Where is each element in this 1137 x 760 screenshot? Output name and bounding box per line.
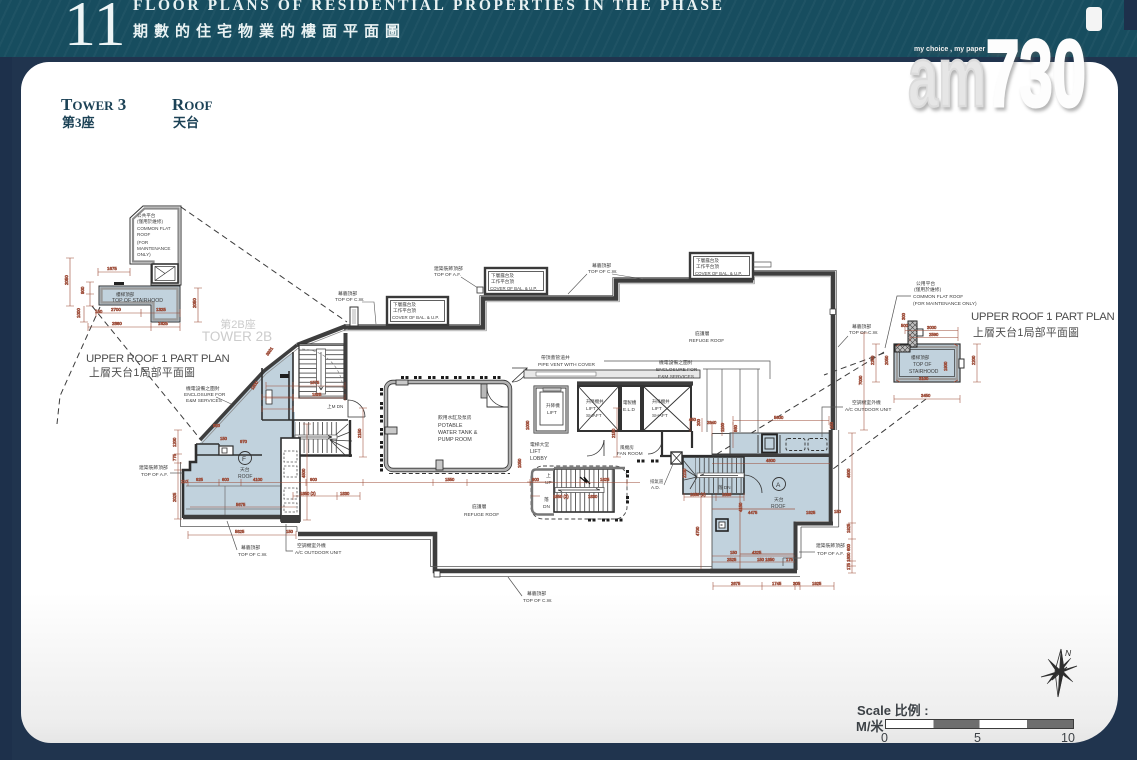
svg-text:2025: 2025 <box>172 492 177 502</box>
svg-text:幕牆頂部: 幕牆頂部 <box>852 323 871 330</box>
svg-text:150: 150 <box>286 529 294 534</box>
svg-text:DN: DN <box>543 504 550 510</box>
svg-text:150: 150 <box>834 509 842 514</box>
svg-text:LOBBY: LOBBY <box>530 456 548 462</box>
svg-text:帶頂蓋管道井: 帶頂蓋管道井 <box>541 354 570 361</box>
svg-text:ENCLOSURE FOR: ENCLOSURE FOR <box>656 367 698 373</box>
svg-text:(FOR MAINTENANCE ONLY): (FOR MAINTENANCE ONLY) <box>913 301 977 307</box>
svg-text:175: 175 <box>786 557 794 562</box>
svg-text:工作平台頂: 工作平台頂 <box>696 263 719 270</box>
svg-text:工作平台頂: 工作平台頂 <box>393 307 416 314</box>
svg-text:電梯大堂: 電梯大堂 <box>530 441 549 448</box>
svg-text:305: 305 <box>793 581 801 586</box>
svg-text:900: 900 <box>80 286 85 294</box>
svg-text:幕牆頂部: 幕牆頂部 <box>338 290 357 297</box>
svg-text:樓梯頂部: 樓梯頂部 <box>116 291 135 298</box>
svg-text:N: N <box>1065 648 1072 658</box>
svg-text:ROOF: ROOF <box>238 474 252 480</box>
svg-text:900: 900 <box>310 477 318 482</box>
svg-text:1575: 1575 <box>310 380 320 385</box>
svg-text:1625: 1625 <box>158 321 168 326</box>
svg-text:公用平台: 公用平台 <box>916 280 935 287</box>
svg-text:(僅用於維修): (僅用於維修) <box>914 286 942 293</box>
svg-text:TOP OF STAIRHOOD: TOP OF STAIRHOOD <box>112 298 163 304</box>
svg-text:PUMP ROOM: PUMP ROOM <box>438 437 472 443</box>
svg-text:(FOR: (FOR <box>137 240 149 245</box>
svg-text:LIFT: LIFT <box>530 449 541 455</box>
svg-text:5825: 5825 <box>235 529 245 534</box>
svg-text:落: 落 <box>544 496 549 503</box>
svg-text:幕牆頂部: 幕牆頂部 <box>241 544 260 551</box>
svg-text:3450: 3450 <box>921 393 931 398</box>
svg-text:REFUGE ROOF: REFUGE ROOF <box>689 338 724 344</box>
svg-text:5675: 5675 <box>236 502 246 507</box>
svg-text:E&M SERVICES: E&M SERVICES <box>186 398 222 404</box>
svg-text:建築裝飾頂部: 建築裝飾頂部 <box>434 265 463 272</box>
svg-text:4325: 4325 <box>752 550 762 555</box>
svg-text:150: 150 <box>95 309 103 314</box>
svg-text:飲用水缸及泵房: 飲用水缸及泵房 <box>438 414 472 421</box>
svg-text:TOP OF A.F.: TOP OF A.F. <box>434 272 461 278</box>
svg-text:UP: UP <box>545 480 552 486</box>
svg-text:升降機井: 升降機井 <box>652 398 670 405</box>
svg-text:A/C OUTDOOR UNIT: A/C OUTDOOR UNIT <box>845 407 891 413</box>
svg-text:建築裝飾頂部: 建築裝飾頂部 <box>816 542 845 549</box>
svg-text:升降機: 升降機 <box>546 402 560 409</box>
svg-text:(僅用於維修): (僅用於維修) <box>137 218 163 225</box>
svg-text:3931: 3931 <box>265 346 275 357</box>
svg-text:4150: 4150 <box>738 502 743 512</box>
svg-text:A/C OUTDOOR UNIT: A/C OUTDOOR UNIT <box>295 550 341 556</box>
svg-text:1625: 1625 <box>600 477 610 482</box>
svg-text:上M DN: 上M DN <box>327 403 343 409</box>
svg-text:COVER OF BAL. & U.P.: COVER OF BAL. & U.P. <box>392 315 439 320</box>
svg-text:LIFT: LIFT <box>586 406 596 412</box>
svg-text:LIFT: LIFT <box>547 410 557 416</box>
svg-text:COVER OF BAL. & U.P.: COVER OF BAL. & U.P. <box>490 286 537 291</box>
svg-text:工作平台頂: 工作平台頂 <box>491 278 514 285</box>
svg-text:SHAFT: SHAFT <box>586 413 602 419</box>
svg-text:2200: 2200 <box>870 355 875 365</box>
svg-text:150: 150 <box>829 421 834 429</box>
svg-text:E.L.D: E.L.D <box>623 407 636 413</box>
svg-text:A: A <box>776 482 781 489</box>
svg-text:空調機室外機: 空調機室外機 <box>297 542 326 549</box>
svg-text:幕牆頂部: 幕牆頂部 <box>527 590 546 597</box>
svg-text:1925: 1925 <box>812 581 822 586</box>
svg-text:2150: 2150 <box>357 428 362 438</box>
svg-text:1900: 1900 <box>943 361 948 371</box>
svg-text:2675: 2675 <box>731 581 741 586</box>
svg-text:4900: 4900 <box>846 468 851 478</box>
svg-text:ROOF: ROOF <box>771 504 785 510</box>
svg-text:1830: 1830 <box>588 494 598 499</box>
svg-text:PIPE VENT WITH COVER: PIPE VENT WITH COVER <box>538 362 595 368</box>
svg-text:1325: 1325 <box>156 307 166 312</box>
svg-text:300: 300 <box>901 312 906 320</box>
svg-text:MAINTENANCE: MAINTENANCE <box>137 246 170 251</box>
svg-text:1000: 1000 <box>76 308 81 318</box>
svg-text:2050: 2050 <box>192 298 197 308</box>
svg-text:2200: 2200 <box>971 355 976 365</box>
svg-text:4500: 4500 <box>301 468 306 478</box>
svg-text:機電設備之圍封: 機電設備之圍封 <box>186 385 220 392</box>
svg-text:3100: 3100 <box>919 376 929 381</box>
svg-text:上: 上 <box>546 472 551 479</box>
svg-text:1745: 1745 <box>772 581 782 586</box>
svg-text:5600: 5600 <box>774 415 784 420</box>
svg-text:1825: 1825 <box>312 392 322 397</box>
svg-text:600: 600 <box>222 477 230 482</box>
svg-text:UPPER ROOF 1 PART PLAN: UPPER ROOF 1 PART PLAN <box>971 311 1114 323</box>
svg-text:110: 110 <box>181 479 188 484</box>
svg-text:3000: 3000 <box>927 325 937 330</box>
svg-text:150: 150 <box>730 550 738 555</box>
svg-text:機電設備之圍封: 機電設備之圍封 <box>659 359 693 366</box>
svg-text:1830: 1830 <box>340 491 350 496</box>
svg-text:REFUGE ROOF: REFUGE ROOF <box>464 512 499 518</box>
svg-text:ENCLOSURE FOR: ENCLOSURE FOR <box>184 392 226 398</box>
svg-text:下層露台及: 下層露台及 <box>696 257 719 264</box>
svg-text:4475: 4475 <box>748 510 758 515</box>
svg-text:4100: 4100 <box>253 477 263 482</box>
svg-text:天台: 天台 <box>240 466 250 473</box>
svg-text:下層露台及: 下層露台及 <box>491 272 514 279</box>
svg-text:2050: 2050 <box>64 275 69 285</box>
svg-text:1850 (2): 1850 (2) <box>553 494 569 499</box>
svg-text:建築裝飾頂部: 建築裝飾頂部 <box>139 464 168 471</box>
svg-text:860: 860 <box>733 424 738 432</box>
svg-text:200: 200 <box>696 418 701 426</box>
svg-text:A.D.: A.D. <box>651 485 660 490</box>
svg-text:2150: 2150 <box>611 428 616 438</box>
svg-text:1100: 1100 <box>720 422 725 432</box>
svg-text:落 DN: 落 DN <box>718 484 731 491</box>
svg-text:ROOF: ROOF <box>137 232 150 237</box>
svg-text:2525: 2525 <box>727 557 737 562</box>
svg-text:ONLY): ONLY) <box>137 252 151 257</box>
svg-text:TOP OF C.W.: TOP OF C.W. <box>523 598 552 604</box>
svg-text:2840: 2840 <box>707 420 717 425</box>
svg-text:F: F <box>242 456 246 463</box>
svg-text:COVER OF BAL. & U.P.: COVER OF BAL. & U.P. <box>695 271 742 276</box>
svg-text:TOWER 2B: TOWER 2B <box>202 329 272 344</box>
svg-text:2230: 2230 <box>682 468 687 478</box>
svg-text:600: 600 <box>846 543 851 551</box>
svg-text:E&M SERVICES: E&M SERVICES <box>658 374 694 380</box>
svg-text:500: 500 <box>901 323 909 328</box>
svg-text:1675: 1675 <box>107 266 117 271</box>
svg-text:上層天台1局部平面圖: 上層天台1局部平面圖 <box>89 365 195 379</box>
svg-text:775: 775 <box>172 453 177 461</box>
svg-text:900: 900 <box>532 477 540 482</box>
svg-text:WATER TANK &: WATER TANK & <box>438 430 478 436</box>
svg-text:庇護層: 庇護層 <box>695 330 710 337</box>
svg-text:電製槽: 電製槽 <box>623 399 637 406</box>
svg-text:1550: 1550 <box>445 477 455 482</box>
svg-text:TOP OF A.F.: TOP OF A.F. <box>141 472 168 478</box>
svg-text:SHAFT: SHAFT <box>652 413 668 419</box>
svg-text:上層天台1局部平面圖: 上層天台1局部平面圖 <box>973 325 1079 339</box>
svg-text:2590: 2590 <box>929 332 939 337</box>
svg-text:COMMON FLAT ROOF: COMMON FLAT ROOF <box>913 294 963 300</box>
svg-text:1925: 1925 <box>806 510 816 515</box>
svg-text:925: 925 <box>196 477 204 482</box>
svg-text:150: 150 <box>220 436 228 441</box>
svg-text:幕牆頂部: 幕牆頂部 <box>592 262 611 269</box>
svg-text:FAN ROOM: FAN ROOM <box>617 451 643 457</box>
svg-text:1050: 1050 <box>517 458 522 468</box>
svg-text:7000: 7000 <box>858 375 863 385</box>
svg-text:LIFT: LIFT <box>652 406 662 412</box>
svg-text:TOP OF A.F.: TOP OF A.F. <box>817 551 844 557</box>
svg-text:4700: 4700 <box>695 526 700 536</box>
svg-text:天台: 天台 <box>774 496 784 503</box>
svg-text:175 1800: 175 1800 <box>846 552 851 570</box>
svg-text:970: 970 <box>240 439 248 444</box>
svg-text:2860: 2860 <box>112 321 122 326</box>
svg-text:風機房: 風機房 <box>620 444 634 451</box>
svg-text:1850 (2): 1850 (2) <box>690 492 706 497</box>
svg-text:1200: 1200 <box>172 437 177 447</box>
svg-text:2050: 2050 <box>884 355 889 365</box>
svg-text:庇護層: 庇護層 <box>472 503 487 510</box>
svg-text:TOP OF: TOP OF <box>913 362 931 368</box>
svg-text:STAIRHOOD: STAIRHOOD <box>909 369 939 375</box>
svg-text:1830: 1830 <box>722 492 732 497</box>
svg-text:4800: 4800 <box>766 458 776 463</box>
svg-text:1925: 1925 <box>846 523 851 533</box>
svg-text:公共平台: 公共平台 <box>137 212 156 219</box>
svg-text:排氣道: 排氣道 <box>650 478 664 485</box>
svg-text:UPPER ROOF 1 PART PLAN: UPPER ROOF 1 PART PLAN <box>86 353 229 365</box>
svg-text:1850 (2): 1850 (2) <box>300 491 316 496</box>
svg-text:150 1850: 150 1850 <box>757 557 775 562</box>
svg-text:2700: 2700 <box>111 307 121 312</box>
svg-text:TOP OF C.W.: TOP OF C.W. <box>335 297 364 303</box>
svg-text:820: 820 <box>213 423 221 428</box>
svg-text:COMMON FLAT: COMMON FLAT <box>137 226 171 231</box>
svg-text:空調機室外機: 空調機室外機 <box>852 399 881 406</box>
svg-text:下層露台及: 下層露台及 <box>393 301 416 308</box>
svg-text:1000: 1000 <box>525 420 530 430</box>
svg-text:TOP OF C.W.: TOP OF C.W. <box>238 552 267 558</box>
svg-text:升降機井: 升降機井 <box>586 398 604 405</box>
svg-text:樓梯頂部: 樓梯頂部 <box>911 354 930 361</box>
svg-text:POTABLE: POTABLE <box>438 423 463 429</box>
